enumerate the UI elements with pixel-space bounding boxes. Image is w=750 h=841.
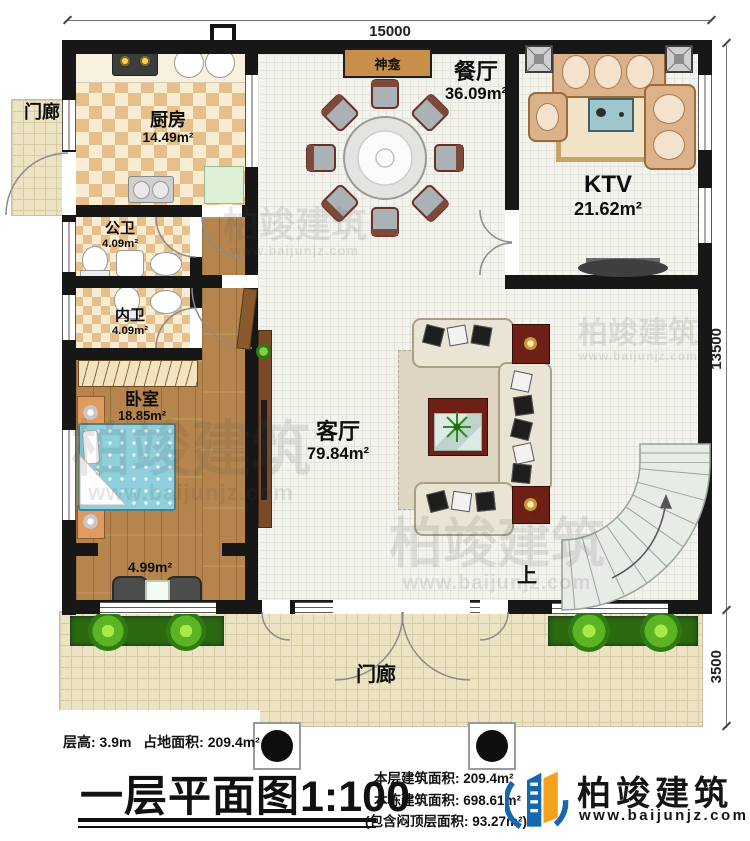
- floor-height: 层高: 3.9m: [63, 734, 131, 750]
- title-underline-2: [78, 826, 376, 828]
- bedroom-door-leaf: [237, 288, 257, 349]
- room-label-private-bath: 内卫4.09m²: [85, 308, 175, 338]
- speaker-icon: [526, 46, 692, 72]
- ktv-tv-icon: [578, 258, 668, 277]
- stat-attic-area: (包含闷顶层面积: 93.27m²): [365, 811, 527, 833]
- dining-set: [307, 80, 463, 236]
- room-label-ktv: KTV21.62m²: [558, 172, 658, 219]
- stairs-up-label: 上: [512, 565, 542, 587]
- room-label-bedroom: 卧室18.85m²: [92, 390, 192, 424]
- staircase: [562, 444, 710, 610]
- floor-info-line: 层高: 3.9m 占地面积: 209.4m²: [63, 732, 260, 752]
- title-underline: [78, 818, 376, 822]
- room-label-porch-bottom: 门廊: [340, 664, 412, 686]
- room-label-bay: 4.99m²: [105, 560, 195, 576]
- site-area: 占地面积: 209.4m²: [143, 734, 260, 750]
- room-label-living: 客厅79.84m²: [288, 420, 388, 463]
- room-label-kitchen: 厨房14.49m²: [118, 110, 218, 145]
- room-label-public-bath: 公卫4.09m²: [75, 221, 165, 251]
- brand-logo: 柏竣建筑 www.baijunjz.com: [505, 760, 745, 838]
- floor-plan-page: 神龛: [0, 0, 750, 841]
- duvet-fold: [80, 455, 126, 505]
- brand-logo-icon: [505, 762, 571, 834]
- brand-url: www.baijunjz.com: [579, 807, 748, 824]
- room-label-porch-left: 门廊: [14, 102, 70, 122]
- plan-title: 一层平面图1:100: [80, 762, 410, 824]
- plant-icon: [443, 412, 471, 442]
- room-label-dining: 餐厅36.09m²: [426, 60, 526, 103]
